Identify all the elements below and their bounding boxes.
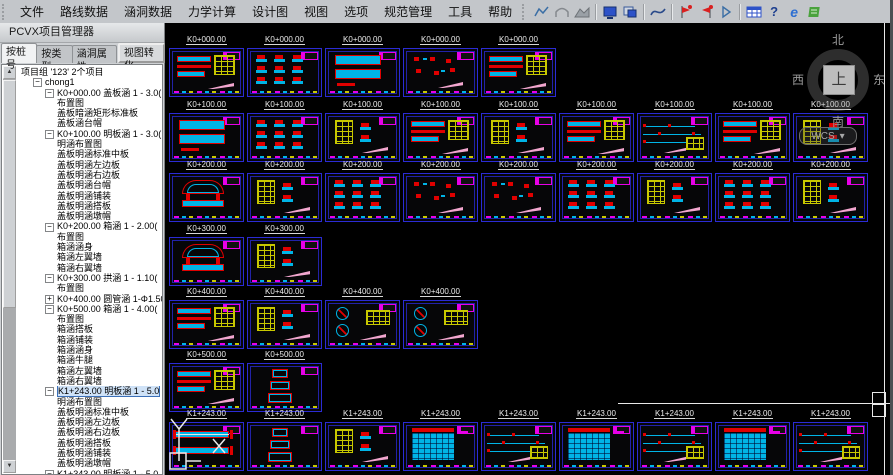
tree-node[interactable]: −K0+200.00 箱涵 1 - 2.00( xyxy=(17,221,162,231)
drawing-thumbnail[interactable] xyxy=(325,300,400,349)
menu-bar: 文件路线数据涵洞数据力学计算设计图视图选项规范管理工具帮助 ?e xyxy=(0,0,893,24)
drawing-thumbnail[interactable] xyxy=(169,237,244,286)
title-block xyxy=(457,177,474,185)
sheet-footer xyxy=(252,91,317,93)
tree-node[interactable]: 盖板明涵标准中板 xyxy=(17,149,162,159)
menu-item[interactable]: 规范管理 xyxy=(376,5,440,19)
tree-node-label: 盖板明涵标准中板 xyxy=(57,149,129,159)
sheet-footer xyxy=(252,406,317,408)
sheet-footer xyxy=(720,156,785,158)
tree-node[interactable]: 盖板明涵搭板 xyxy=(17,438,162,448)
title-block xyxy=(301,177,318,185)
title-block xyxy=(457,52,474,60)
station-label: K1+243.00 xyxy=(325,409,400,418)
menu-item[interactable]: 工具 xyxy=(440,5,480,19)
tab-2[interactable]: 涵洞属性 xyxy=(72,45,117,63)
station-label: K1+243.00 xyxy=(715,409,790,418)
station-label: K0+400.00 xyxy=(325,287,400,296)
station-label: K0+300.00 xyxy=(169,224,244,233)
menu-item[interactable]: 力学计算 xyxy=(180,5,244,19)
compass-west-label[interactable]: 西 xyxy=(792,71,804,88)
sheet-footer xyxy=(408,465,473,467)
play-icon[interactable] xyxy=(716,3,736,21)
sheet-footer xyxy=(486,91,551,93)
sheet-footer xyxy=(174,156,239,158)
station-label: K0+400.00 xyxy=(403,287,478,296)
tree-node[interactable]: 布置图 xyxy=(17,98,162,108)
station-label: K0+500.00 xyxy=(247,350,322,359)
tree-node[interactable]: 箱涵左翼墙 xyxy=(17,252,162,262)
drawing-thumbnail[interactable] xyxy=(637,422,712,471)
station-label: K0+100.00 xyxy=(403,100,478,109)
sheet-footer xyxy=(408,216,473,218)
project-tree-container: ▲ ▼ 项目组 '123' 2个项目−chong1−K0+000.00 盖板涵 … xyxy=(1,64,163,475)
tree-node-label: 箱涵搭板 xyxy=(57,324,93,334)
ucs-icon xyxy=(165,395,235,473)
panel-title: PCVX项目管理器 xyxy=(0,23,164,43)
tree-node-label: 项目组 '123' 2个项目 xyxy=(21,67,103,77)
tree-node-label: 布置图 xyxy=(57,314,84,324)
tree-node[interactable]: −K0+300.00 拱涵 1 - 1.10( xyxy=(17,273,162,283)
tree-node-label: 盖板明涵搭板 xyxy=(57,438,111,448)
drawing-thumbnail[interactable] xyxy=(793,173,868,222)
scrollbar-thumb[interactable] xyxy=(3,80,16,308)
sheet-footer xyxy=(564,156,629,158)
drawing-thumbnail[interactable] xyxy=(715,173,790,222)
tree-node[interactable]: 盖板明涵右边板 xyxy=(17,170,162,180)
drawing-thumbnail[interactable] xyxy=(481,48,556,97)
sheet-footer xyxy=(720,216,785,218)
drawing-thumbnail[interactable] xyxy=(481,173,556,222)
title-block xyxy=(379,52,396,60)
station-label: K0+300.00 xyxy=(247,224,322,233)
tree-node-label: K1+243.00 明板涵 1 - 5.0 xyxy=(57,386,160,396)
tree-node[interactable]: −K0+500.00 箱涵 1 - 4.00( xyxy=(17,304,162,314)
station-label: K0+200.00 xyxy=(559,160,634,169)
tree-node[interactable]: 盖板明涵墩帽 xyxy=(17,211,162,221)
station-label: K0+100.00 xyxy=(559,100,634,109)
tree-node[interactable]: 布置图 xyxy=(17,232,162,242)
layout-windows-icon[interactable] xyxy=(620,3,640,21)
title-block xyxy=(535,426,552,434)
tree-node-label: K0+300.00 拱涵 1 - 1.10( xyxy=(57,273,157,283)
collapse-icon[interactable]: − xyxy=(45,387,54,396)
drawing-thumbnail[interactable] xyxy=(481,422,556,471)
sheet-footer xyxy=(408,156,473,158)
tree-node[interactable]: 箱涵涵身 xyxy=(17,345,162,355)
tree-node[interactable]: 盖板涵台帽 xyxy=(17,118,162,128)
tree-node-label: 盖板明涵右边板 xyxy=(57,170,120,180)
station-label: K1+243.00 xyxy=(637,409,712,418)
station-label: K0+100.00 xyxy=(247,100,322,109)
drawing-thumbnail[interactable] xyxy=(169,173,244,222)
display-icon[interactable] xyxy=(600,3,620,21)
tree-node-label: 盖板明涵铺装 xyxy=(57,191,111,201)
title-block xyxy=(301,241,318,249)
title-block xyxy=(769,177,786,185)
sheet-footer xyxy=(798,465,863,467)
drawing-thumbnail[interactable] xyxy=(325,173,400,222)
tree-node-label: 布置图 xyxy=(57,98,84,108)
tree-node-label: chong1 xyxy=(45,77,75,87)
sheet-footer xyxy=(252,343,317,345)
station-label: K0+000.00 xyxy=(403,35,478,44)
title-block xyxy=(379,426,396,434)
tree-node-label: 箱涵左翼墙 xyxy=(57,252,102,262)
tree-node-label: K0+500.00 箱涵 1 - 4.00( xyxy=(57,304,157,314)
tree-node[interactable]: 盖板暗涵矩形标准板 xyxy=(17,108,162,118)
menu-items: 文件路线数据涵洞数据力学计算设计图视图选项规范管理工具帮助 xyxy=(12,1,520,23)
wcs-selector[interactable]: WCS ▾ xyxy=(799,127,857,145)
tree-node[interactable]: 盖板明涵铺装 xyxy=(17,448,162,458)
station-label: K0+200.00 xyxy=(637,160,712,169)
tree-node[interactable]: 布置图 xyxy=(17,314,162,324)
expand-icon[interactable]: + xyxy=(45,295,54,304)
drawing-thumbnail[interactable] xyxy=(169,48,244,97)
drawing-thumbnail[interactable] xyxy=(247,237,322,286)
tree-node-label: 盖板暗涵矩形标准板 xyxy=(57,108,138,118)
view-compass-icon[interactable]: 上 北 西 东 南 xyxy=(792,31,888,135)
drawing-thumbnail[interactable] xyxy=(247,300,322,349)
drawing-thumbnail[interactable] xyxy=(247,48,322,97)
sheet-footer xyxy=(486,465,551,467)
tree-node-label: 明涵布置图 xyxy=(57,139,102,149)
tree-node-label: 箱涵涵身 xyxy=(57,345,93,355)
sheet-footer xyxy=(174,280,239,282)
drawing-thumbnail[interactable] xyxy=(793,422,868,471)
collapse-icon[interactable]: − xyxy=(45,305,54,314)
title-block xyxy=(691,177,708,185)
station-label: K0+200.00 xyxy=(247,160,322,169)
collapse-icon[interactable]: − xyxy=(45,470,54,474)
table-grid-icon[interactable] xyxy=(744,3,764,21)
scroll-down-button[interactable]: ▼ xyxy=(3,460,16,473)
tree-node[interactable]: −K1+343.00 明板涵 1 - 5.0 xyxy=(17,469,162,474)
sheet-footer xyxy=(174,216,239,218)
drawing-thumbnail[interactable] xyxy=(481,113,556,162)
title-block xyxy=(301,304,318,312)
browser-icon[interactable]: e xyxy=(784,3,804,21)
tree-node[interactable]: 明涵布置图 xyxy=(17,397,162,407)
menu-item[interactable]: 文件 xyxy=(12,5,52,19)
drawing-thumbnail[interactable] xyxy=(325,113,400,162)
tree-node[interactable]: 盖板明涵右边板 xyxy=(17,427,162,437)
sheet-footer xyxy=(798,216,863,218)
crosshair-horizontal-line xyxy=(618,403,893,404)
tree-node[interactable]: −K0+100.00 明板涵 1 - 3.0( xyxy=(17,129,162,139)
help-icon[interactable]: ? xyxy=(764,3,784,21)
tree-node-label: 盖板明涵搭板 xyxy=(57,201,111,211)
tree-node[interactable]: 项目组 '123' 2个项目 xyxy=(17,67,162,77)
station-label: K0+200.00 xyxy=(481,160,556,169)
menu-item[interactable]: 涵洞数据 xyxy=(116,5,180,19)
tree-node-label: 盖板明涵台帽 xyxy=(57,180,111,190)
sheet-footer xyxy=(642,465,707,467)
tree-node-label: K0+000.00 盖板涵 1 - 3.0( xyxy=(57,88,161,98)
station-label: K0+000.00 xyxy=(481,35,556,44)
sheet-footer xyxy=(174,91,239,93)
title-block xyxy=(535,177,552,185)
title-block xyxy=(691,426,708,434)
sheet-footer xyxy=(564,216,629,218)
project-manager-panel: PCVX项目管理器 按桩号按类型涵洞属性视图转化 ▲ ▼ 项目组 '123' 2… xyxy=(0,23,165,475)
tree-node[interactable]: 箱涵涵身 xyxy=(17,242,162,252)
tab-0[interactable]: 按桩号 xyxy=(1,43,37,63)
sheet-footer xyxy=(330,91,395,93)
sheet-footer xyxy=(174,343,239,345)
tree-node[interactable]: 盖板明涵台帽 xyxy=(17,180,162,190)
station-label: K1+243.00 xyxy=(403,409,478,418)
sheet-footer xyxy=(486,216,551,218)
tree-scrollbar[interactable]: ▲ ▼ xyxy=(3,66,16,473)
tree-node[interactable]: 箱涵右翼墙 xyxy=(17,263,162,273)
drawing-thumbnail[interactable] xyxy=(715,422,790,471)
notes-icon[interactable] xyxy=(804,3,824,21)
tree-node-label: 盖板明涵右边板 xyxy=(57,427,120,437)
check-flag-alt-icon[interactable] xyxy=(696,3,716,21)
drawing-thumbnail[interactable] xyxy=(247,422,322,471)
tab-bar: 按桩号按类型涵洞属性视图转化 xyxy=(1,44,164,63)
title-block xyxy=(613,177,630,185)
wcs-label: WCS xyxy=(811,131,834,142)
collapse-icon[interactable]: − xyxy=(45,223,54,232)
drawing-thumbnail[interactable] xyxy=(403,422,478,471)
tree-node-label: 箱涵右翼墙 xyxy=(57,263,102,273)
tree-node-label: 盖板明涵墩帽 xyxy=(57,211,111,221)
tree-node[interactable]: −chong1 xyxy=(17,77,162,87)
sheet-footer xyxy=(252,280,317,282)
drawing-thumbnail[interactable] xyxy=(325,422,400,471)
menu-item[interactable]: 选项 xyxy=(336,5,376,19)
title-block xyxy=(301,426,318,434)
title-block xyxy=(847,177,864,185)
station-label: K1+243.00 xyxy=(247,409,322,418)
area-chart-icon[interactable] xyxy=(572,3,592,21)
station-label: K0+100.00 xyxy=(637,100,712,109)
menu-item[interactable]: 帮助 xyxy=(480,5,520,19)
check-flag-icon[interactable] xyxy=(676,3,696,21)
section-curve-icon[interactable] xyxy=(648,3,668,21)
trend-chart-icon[interactable] xyxy=(532,3,552,21)
sheet-footer xyxy=(486,156,551,158)
station-label: K0+400.00 xyxy=(169,287,244,296)
drawing-thumbnail[interactable] xyxy=(247,173,322,222)
station-label: K0+100.00 xyxy=(481,100,556,109)
tree-node[interactable]: 盖板明涵左边板 xyxy=(17,417,162,427)
title-block xyxy=(301,367,318,375)
sheet-footer xyxy=(720,465,785,467)
project-tree: 项目组 '123' 2个项目−chong1−K0+000.00 盖板涵 1 - … xyxy=(17,67,162,474)
compass-east-label[interactable]: 东 xyxy=(873,71,885,88)
toolbar-separator xyxy=(595,4,597,20)
culvert-shape-icon[interactable] xyxy=(552,3,572,21)
sheet-footer xyxy=(330,343,395,345)
drawing-thumbnail[interactable] xyxy=(637,173,712,222)
tree-node[interactable]: −K1+243.00 明板涵 1 - 5.0 xyxy=(17,386,162,396)
title-block xyxy=(301,52,318,60)
sheet-footer xyxy=(798,156,863,158)
station-label: K1+243.00 xyxy=(559,409,634,418)
sheet-footer xyxy=(564,465,629,467)
sheet-footer xyxy=(330,156,395,158)
title-block xyxy=(691,117,708,125)
sheet-footer xyxy=(252,465,317,467)
sheet-footer xyxy=(252,216,317,218)
tree-node-label: 盖板明涵左边板 xyxy=(57,417,120,427)
drawing-thumbnail[interactable] xyxy=(715,113,790,162)
drawing-thumbnail[interactable] xyxy=(559,422,634,471)
title-block xyxy=(223,177,240,185)
title-block xyxy=(301,117,318,125)
tree-node-label: 盖板明涵墩帽 xyxy=(57,458,111,468)
drawing-thumbnail[interactable] xyxy=(247,363,322,412)
tree-node-label: 箱涵右翼墙 xyxy=(57,376,102,386)
tree-node[interactable]: +K0+400.00 圆管涵 1-Φ1.50 xyxy=(17,294,162,304)
tree-node-label: K0+100.00 明板涵 1 - 3.0( xyxy=(57,129,161,139)
station-label: K0+000.00 xyxy=(247,35,322,44)
drawing-thumbnail[interactable] xyxy=(403,300,478,349)
station-label: K0+100.00 xyxy=(325,100,400,109)
tree-node[interactable]: 箱涵左翼墙 xyxy=(17,366,162,376)
station-label: K0+100.00 xyxy=(169,100,244,109)
tree-node[interactable]: 布置图 xyxy=(17,283,162,293)
tree-node-label: 箱涵涵身 xyxy=(57,242,93,252)
drawing-thumbnail[interactable] xyxy=(559,113,634,162)
tree-node[interactable]: −K0+000.00 盖板涵 1 - 3.0( xyxy=(17,88,162,98)
tree-node[interactable]: 箱涵牛腿 xyxy=(17,355,162,365)
menu-item[interactable]: 路线数据 xyxy=(52,5,116,19)
station-label: K1+243.00 xyxy=(481,409,556,418)
drawing-thumbnail[interactable] xyxy=(325,48,400,97)
sheet-footer xyxy=(408,343,473,345)
sheet-footer xyxy=(408,91,473,93)
application-window: 文件路线数据涵洞数据力学计算设计图视图选项规范管理工具帮助 ?e PCVX项目管… xyxy=(0,0,893,475)
toolbar-separator xyxy=(643,4,645,20)
station-label: K0+200.00 xyxy=(169,160,244,169)
title-block xyxy=(847,426,864,434)
sheet-footer xyxy=(642,156,707,158)
toolbar-grip[interactable] xyxy=(522,4,529,20)
title-block xyxy=(223,241,240,249)
title-block xyxy=(535,117,552,125)
station-label: K0+400.00 xyxy=(247,287,322,296)
tab-3[interactable]: 视图转化 xyxy=(118,43,165,63)
tree-node[interactable]: 盖板明涵墩帽 xyxy=(17,458,162,468)
drawing-thumbnail[interactable] xyxy=(169,113,244,162)
collapse-icon[interactable]: − xyxy=(33,78,42,87)
tree-node[interactable]: 箱涵搭板 xyxy=(17,324,162,334)
station-label: K0+200.00 xyxy=(793,160,868,169)
pickbox-cursor-outer xyxy=(872,404,886,417)
station-label: K1+243.00 xyxy=(793,409,868,418)
tree-node-label: K1+343.00 明板涵 1 - 5.0 xyxy=(57,469,158,474)
title-block xyxy=(379,117,396,125)
tree-node-label: 明涵布置图 xyxy=(57,397,102,407)
station-label: K0+500.00 xyxy=(169,350,244,359)
station-label: K0+100.00 xyxy=(715,100,790,109)
tree-node-label: K0+400.00 圆管涵 1-Φ1.50 xyxy=(57,294,162,304)
collapse-icon[interactable]: − xyxy=(45,274,54,283)
tree-node-label: 箱涵牛腿 xyxy=(57,355,93,365)
chevron-down-icon: ▾ xyxy=(840,131,845,142)
station-label: K0+000.00 xyxy=(325,35,400,44)
tree-node[interactable]: 盖板明涵搭板 xyxy=(17,201,162,211)
tree-node[interactable]: 盖板明涵铺装 xyxy=(17,191,162,201)
tree-node[interactable]: 盖板明涵标准中板 xyxy=(17,407,162,417)
toolbar: ?e xyxy=(532,1,824,23)
drawing-thumbnail[interactable] xyxy=(403,173,478,222)
tree-node-label: 箱涵铺装 xyxy=(57,335,93,345)
tree-node[interactable]: 明涵布置图 xyxy=(17,139,162,149)
sheet-footer xyxy=(330,465,395,467)
station-label: K0+200.00 xyxy=(715,160,790,169)
sheet-footer xyxy=(252,156,317,158)
title-block xyxy=(223,117,240,125)
station-label: K0+200.00 xyxy=(403,160,478,169)
station-label: K0+200.00 xyxy=(325,160,400,169)
drawing-thumbnail[interactable] xyxy=(637,113,712,162)
tree-node-label: 盖板明涵铺装 xyxy=(57,448,111,458)
title-block xyxy=(379,177,396,185)
tree-node[interactable]: 箱涵右翼墙 xyxy=(17,376,162,386)
tree-node-label: 盖板明涵左边板 xyxy=(57,160,120,170)
tree-node-label: K0+200.00 箱涵 1 - 2.00( xyxy=(57,221,157,231)
drawing-thumbnail[interactable] xyxy=(247,113,322,162)
tree-node[interactable]: 盖板明涵左边板 xyxy=(17,160,162,170)
collapse-icon[interactable]: − xyxy=(45,130,54,139)
drawing-thumbnail[interactable] xyxy=(403,113,478,162)
menubar-grip[interactable] xyxy=(2,4,9,20)
drawing-thumbnail[interactable] xyxy=(169,300,244,349)
toolbar-separator xyxy=(671,4,673,20)
tab-1[interactable]: 按类型 xyxy=(36,45,72,63)
tree-node-label: 布置图 xyxy=(57,283,84,293)
collapse-icon[interactable]: − xyxy=(45,89,54,98)
tree-node-label: 盖板涵台帽 xyxy=(57,118,102,128)
drawing-thumbnail[interactable] xyxy=(403,48,478,97)
station-label: K0+000.00 xyxy=(169,35,244,44)
compass-north-label[interactable]: 北 xyxy=(832,31,844,48)
menu-item[interactable]: 设计图 xyxy=(244,5,296,19)
compass-top-face[interactable]: 上 xyxy=(823,65,855,95)
tree-node-label: 箱涵左翼墙 xyxy=(57,366,102,376)
tree-node-label: 盖板明涵标准中板 xyxy=(57,407,129,417)
sheet-footer xyxy=(330,216,395,218)
cad-canvas[interactable]: K0+000.00K0+000.00K0+000.00K0+000.00K0+0… xyxy=(165,23,893,475)
tree-node[interactable]: 箱涵铺装 xyxy=(17,335,162,345)
drawing-thumbnail[interactable] xyxy=(559,173,634,222)
tree-node-label: 布置图 xyxy=(57,232,84,242)
toolbar-separator xyxy=(739,4,741,20)
menu-item[interactable]: 视图 xyxy=(296,5,336,19)
sheet-footer xyxy=(642,216,707,218)
